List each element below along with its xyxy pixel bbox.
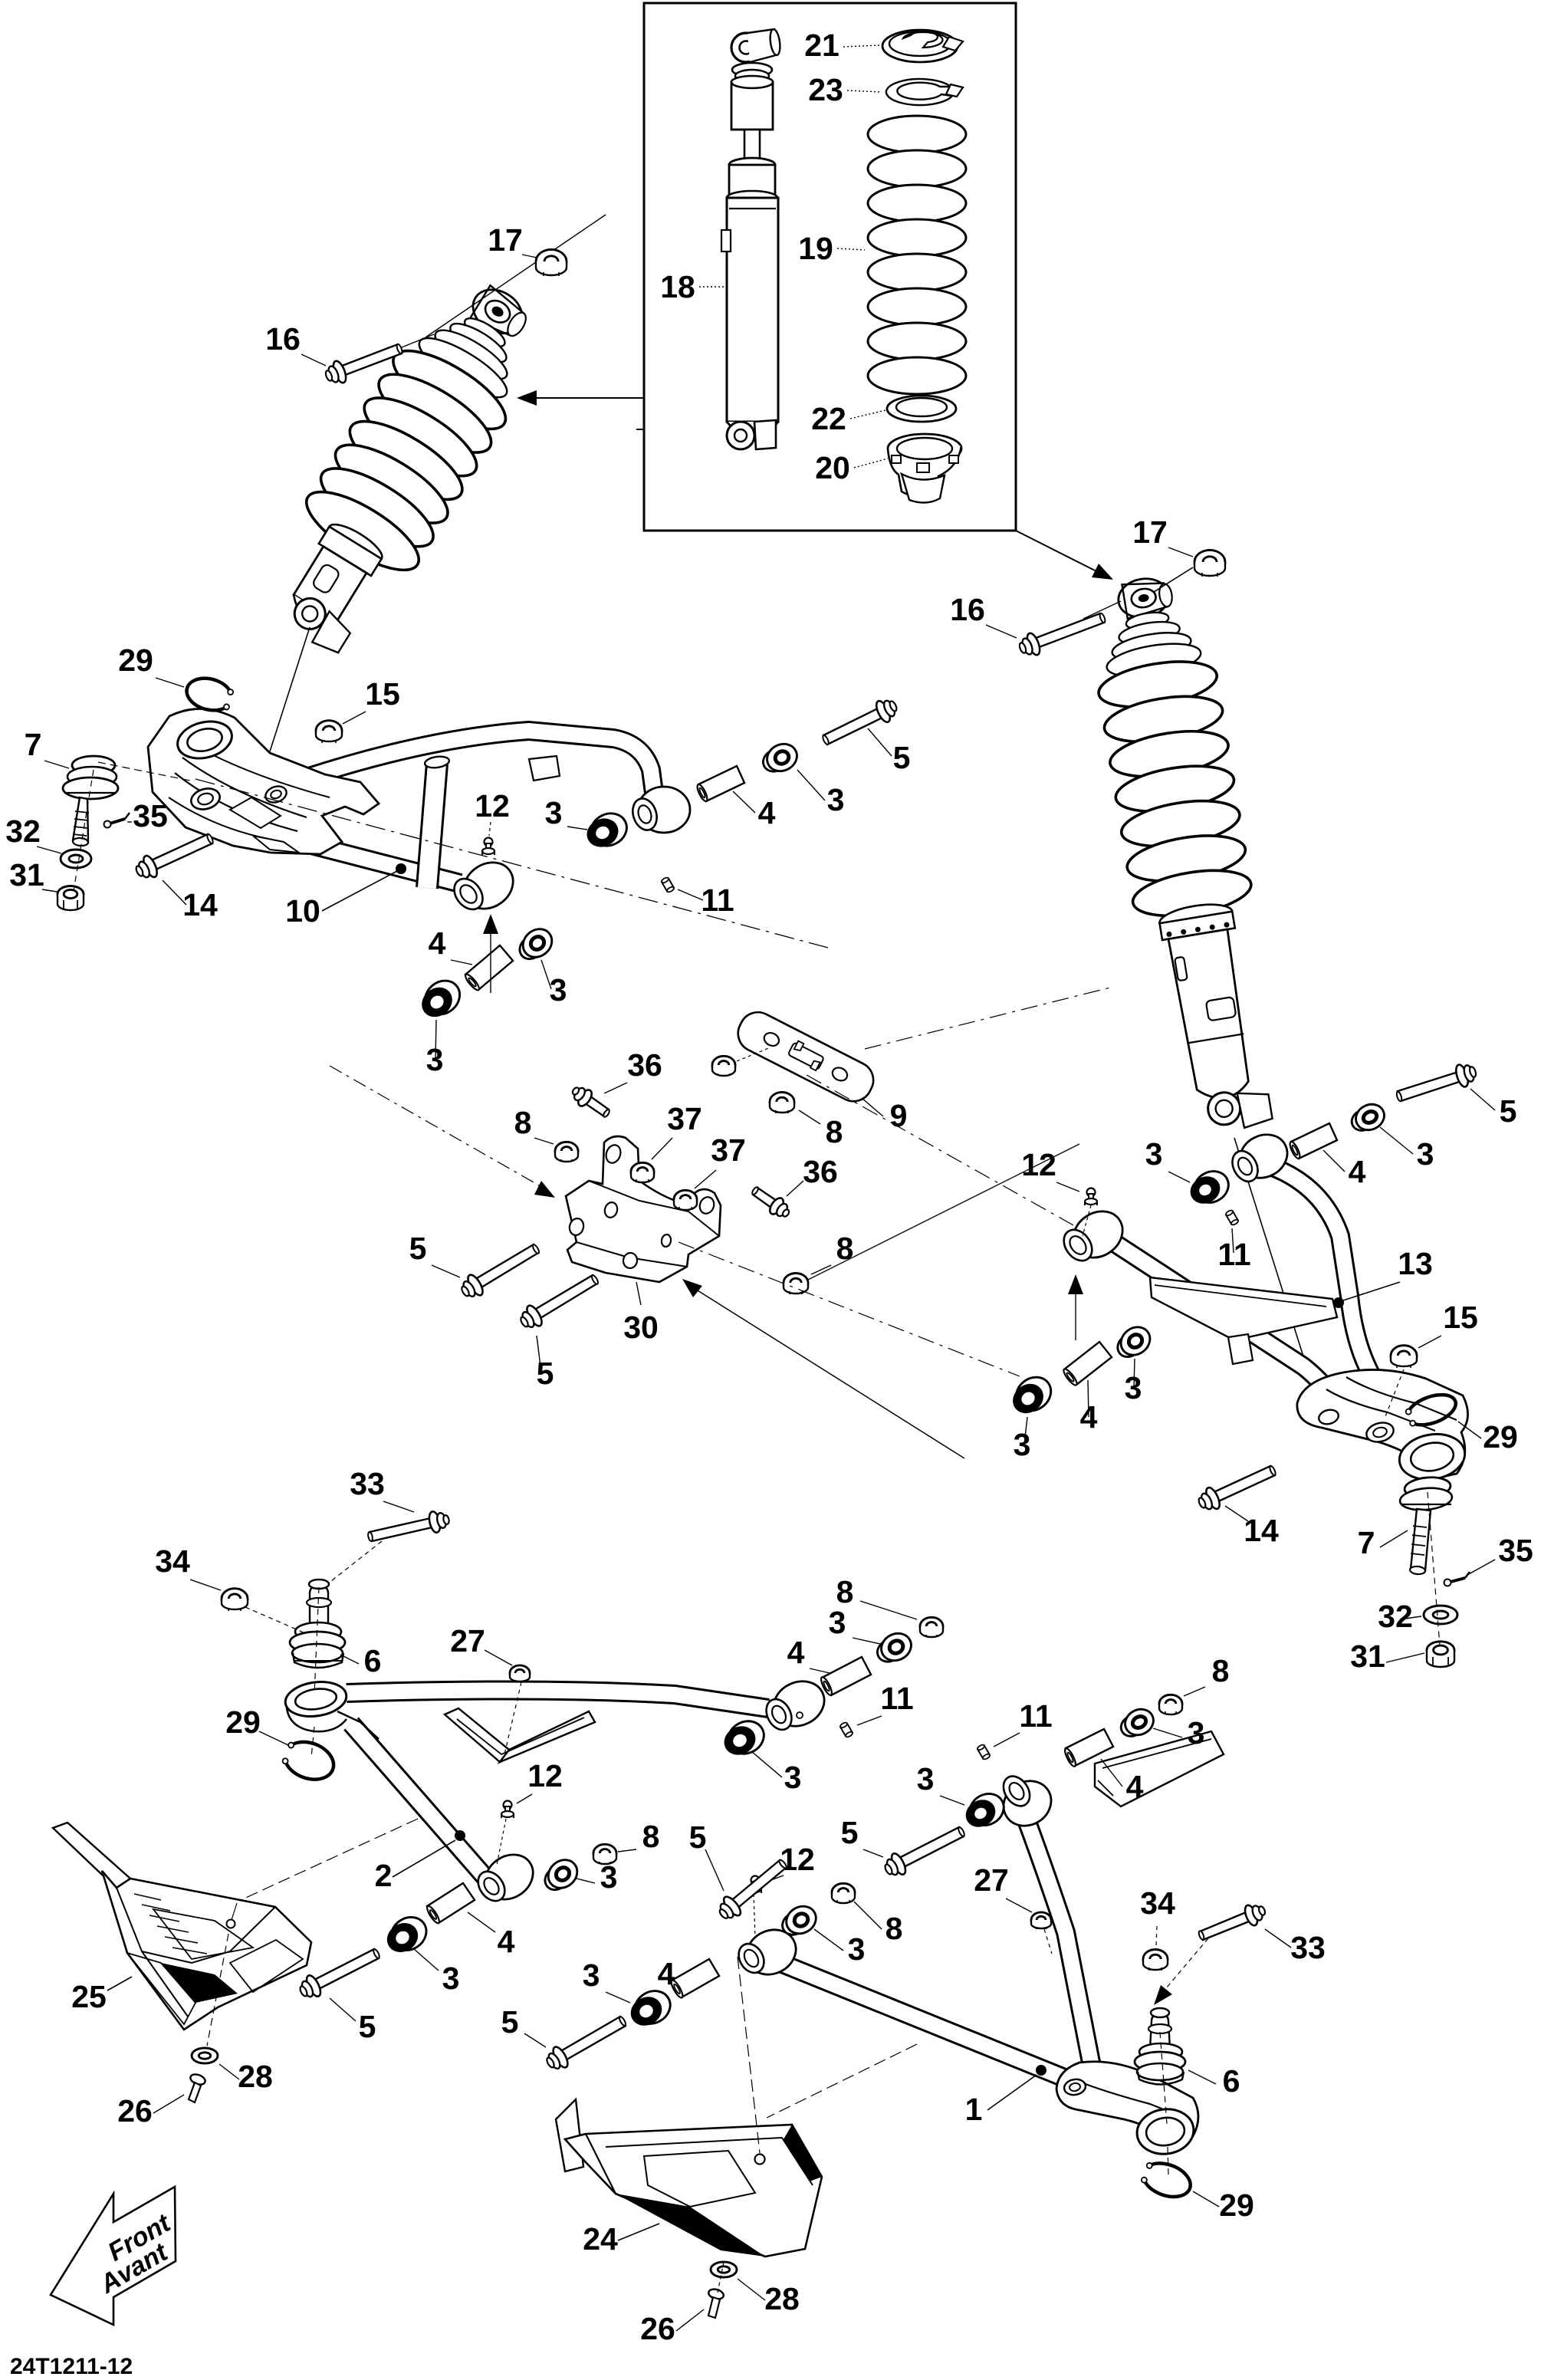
svg-text:3: 3 xyxy=(1014,1427,1031,1462)
svg-text:11: 11 xyxy=(1217,1237,1250,1272)
svg-text:29: 29 xyxy=(1483,1419,1518,1455)
svg-text:8: 8 xyxy=(836,1231,854,1266)
svg-text:30: 30 xyxy=(623,1310,659,1345)
svg-text:29: 29 xyxy=(1219,2188,1254,2223)
svg-text:8: 8 xyxy=(1212,1653,1230,1688)
svg-text:37: 37 xyxy=(711,1132,746,1168)
svg-text:4: 4 xyxy=(1349,1154,1366,1189)
svg-text:29: 29 xyxy=(118,643,153,678)
svg-text:3: 3 xyxy=(442,1961,460,1996)
svg-text:4: 4 xyxy=(758,795,776,830)
svg-text:27: 27 xyxy=(974,1862,1009,1898)
svg-text:7: 7 xyxy=(25,727,42,762)
svg-text:8: 8 xyxy=(642,1819,660,1854)
svg-text:15: 15 xyxy=(365,676,400,712)
svg-text:24: 24 xyxy=(583,2221,618,2257)
svg-text:3: 3 xyxy=(1188,1715,1205,1750)
svg-text:5: 5 xyxy=(359,2009,376,2044)
svg-text:5: 5 xyxy=(841,1815,859,1850)
svg-text:10: 10 xyxy=(285,893,320,929)
svg-text:14: 14 xyxy=(1244,1513,1279,1548)
svg-text:4: 4 xyxy=(1126,1769,1144,1804)
svg-text:3: 3 xyxy=(784,1760,802,1795)
svg-text:12: 12 xyxy=(1021,1147,1056,1182)
svg-text:16: 16 xyxy=(265,321,301,357)
svg-text:11: 11 xyxy=(1019,1698,1052,1734)
svg-text:3: 3 xyxy=(550,972,567,1008)
svg-text:34: 34 xyxy=(155,1543,190,1579)
svg-text:21: 21 xyxy=(804,28,839,63)
svg-text:31: 31 xyxy=(9,857,44,893)
svg-text:26: 26 xyxy=(117,2093,153,2129)
svg-text:4: 4 xyxy=(658,1956,675,1991)
svg-text:19: 19 xyxy=(798,231,833,266)
svg-text:28: 28 xyxy=(764,2281,800,2316)
svg-text:6: 6 xyxy=(1223,2063,1240,2099)
svg-text:4: 4 xyxy=(498,1924,515,1959)
svg-text:3: 3 xyxy=(1417,1136,1434,1172)
svg-text:37: 37 xyxy=(667,1101,702,1136)
svg-text:2: 2 xyxy=(375,1858,393,1893)
svg-text:5: 5 xyxy=(409,1231,427,1266)
svg-text:35: 35 xyxy=(133,798,168,833)
svg-text:24T1211-12: 24T1211-12 xyxy=(10,2354,133,2379)
svg-text:36: 36 xyxy=(803,1154,838,1189)
svg-text:25: 25 xyxy=(71,1979,107,2014)
svg-text:26: 26 xyxy=(640,2311,675,2346)
svg-text:1: 1 xyxy=(965,2092,983,2127)
svg-text:6: 6 xyxy=(364,1643,382,1678)
svg-text:3: 3 xyxy=(917,1761,935,1797)
svg-text:15: 15 xyxy=(1443,1300,1478,1335)
svg-text:5: 5 xyxy=(1500,1093,1517,1129)
svg-text:29: 29 xyxy=(225,1704,261,1740)
svg-text:3: 3 xyxy=(829,1605,846,1640)
svg-text:12: 12 xyxy=(527,1758,563,1793)
svg-text:20: 20 xyxy=(815,450,850,485)
svg-text:3: 3 xyxy=(1125,1370,1142,1405)
svg-text:8: 8 xyxy=(826,1114,843,1149)
svg-text:14: 14 xyxy=(182,887,218,922)
svg-text:17: 17 xyxy=(1132,514,1168,550)
svg-text:32: 32 xyxy=(1378,1599,1413,1634)
svg-text:11: 11 xyxy=(880,1681,913,1716)
svg-text:5: 5 xyxy=(501,2004,519,2040)
svg-text:13: 13 xyxy=(1398,1246,1433,1281)
svg-text:32: 32 xyxy=(5,814,41,849)
svg-text:33: 33 xyxy=(350,1466,385,1501)
svg-text:35: 35 xyxy=(1498,1533,1533,1568)
svg-text:27: 27 xyxy=(450,1623,485,1658)
svg-text:5: 5 xyxy=(689,1820,707,1855)
svg-text:17: 17 xyxy=(488,222,523,258)
svg-text:7: 7 xyxy=(1358,1525,1375,1560)
svg-text:8: 8 xyxy=(836,1574,854,1609)
svg-text:4: 4 xyxy=(787,1635,805,1670)
svg-text:18: 18 xyxy=(660,269,695,304)
svg-text:34: 34 xyxy=(1140,1885,1175,1921)
svg-text:23: 23 xyxy=(808,72,843,107)
svg-text:8: 8 xyxy=(886,1911,903,1946)
svg-text:5: 5 xyxy=(893,740,911,775)
svg-text:3: 3 xyxy=(848,1931,866,1967)
svg-text:28: 28 xyxy=(238,2059,273,2094)
svg-text:31: 31 xyxy=(1350,1639,1385,1674)
svg-text:3: 3 xyxy=(545,795,563,830)
svg-text:22: 22 xyxy=(811,401,846,436)
svg-text:12: 12 xyxy=(475,788,510,823)
svg-text:3: 3 xyxy=(1145,1136,1163,1172)
svg-text:16: 16 xyxy=(950,592,985,627)
svg-text:11: 11 xyxy=(701,883,734,918)
svg-text:4: 4 xyxy=(429,925,446,961)
svg-text:12: 12 xyxy=(780,1842,815,1877)
svg-text:36: 36 xyxy=(627,1047,662,1083)
svg-text:3: 3 xyxy=(426,1042,444,1077)
svg-text:5: 5 xyxy=(537,1356,554,1391)
svg-text:8: 8 xyxy=(514,1105,532,1140)
svg-text:3: 3 xyxy=(583,1958,600,1993)
svg-text:33: 33 xyxy=(1290,1930,1326,1965)
svg-text:3: 3 xyxy=(827,782,845,817)
svg-text:9: 9 xyxy=(890,1098,908,1133)
